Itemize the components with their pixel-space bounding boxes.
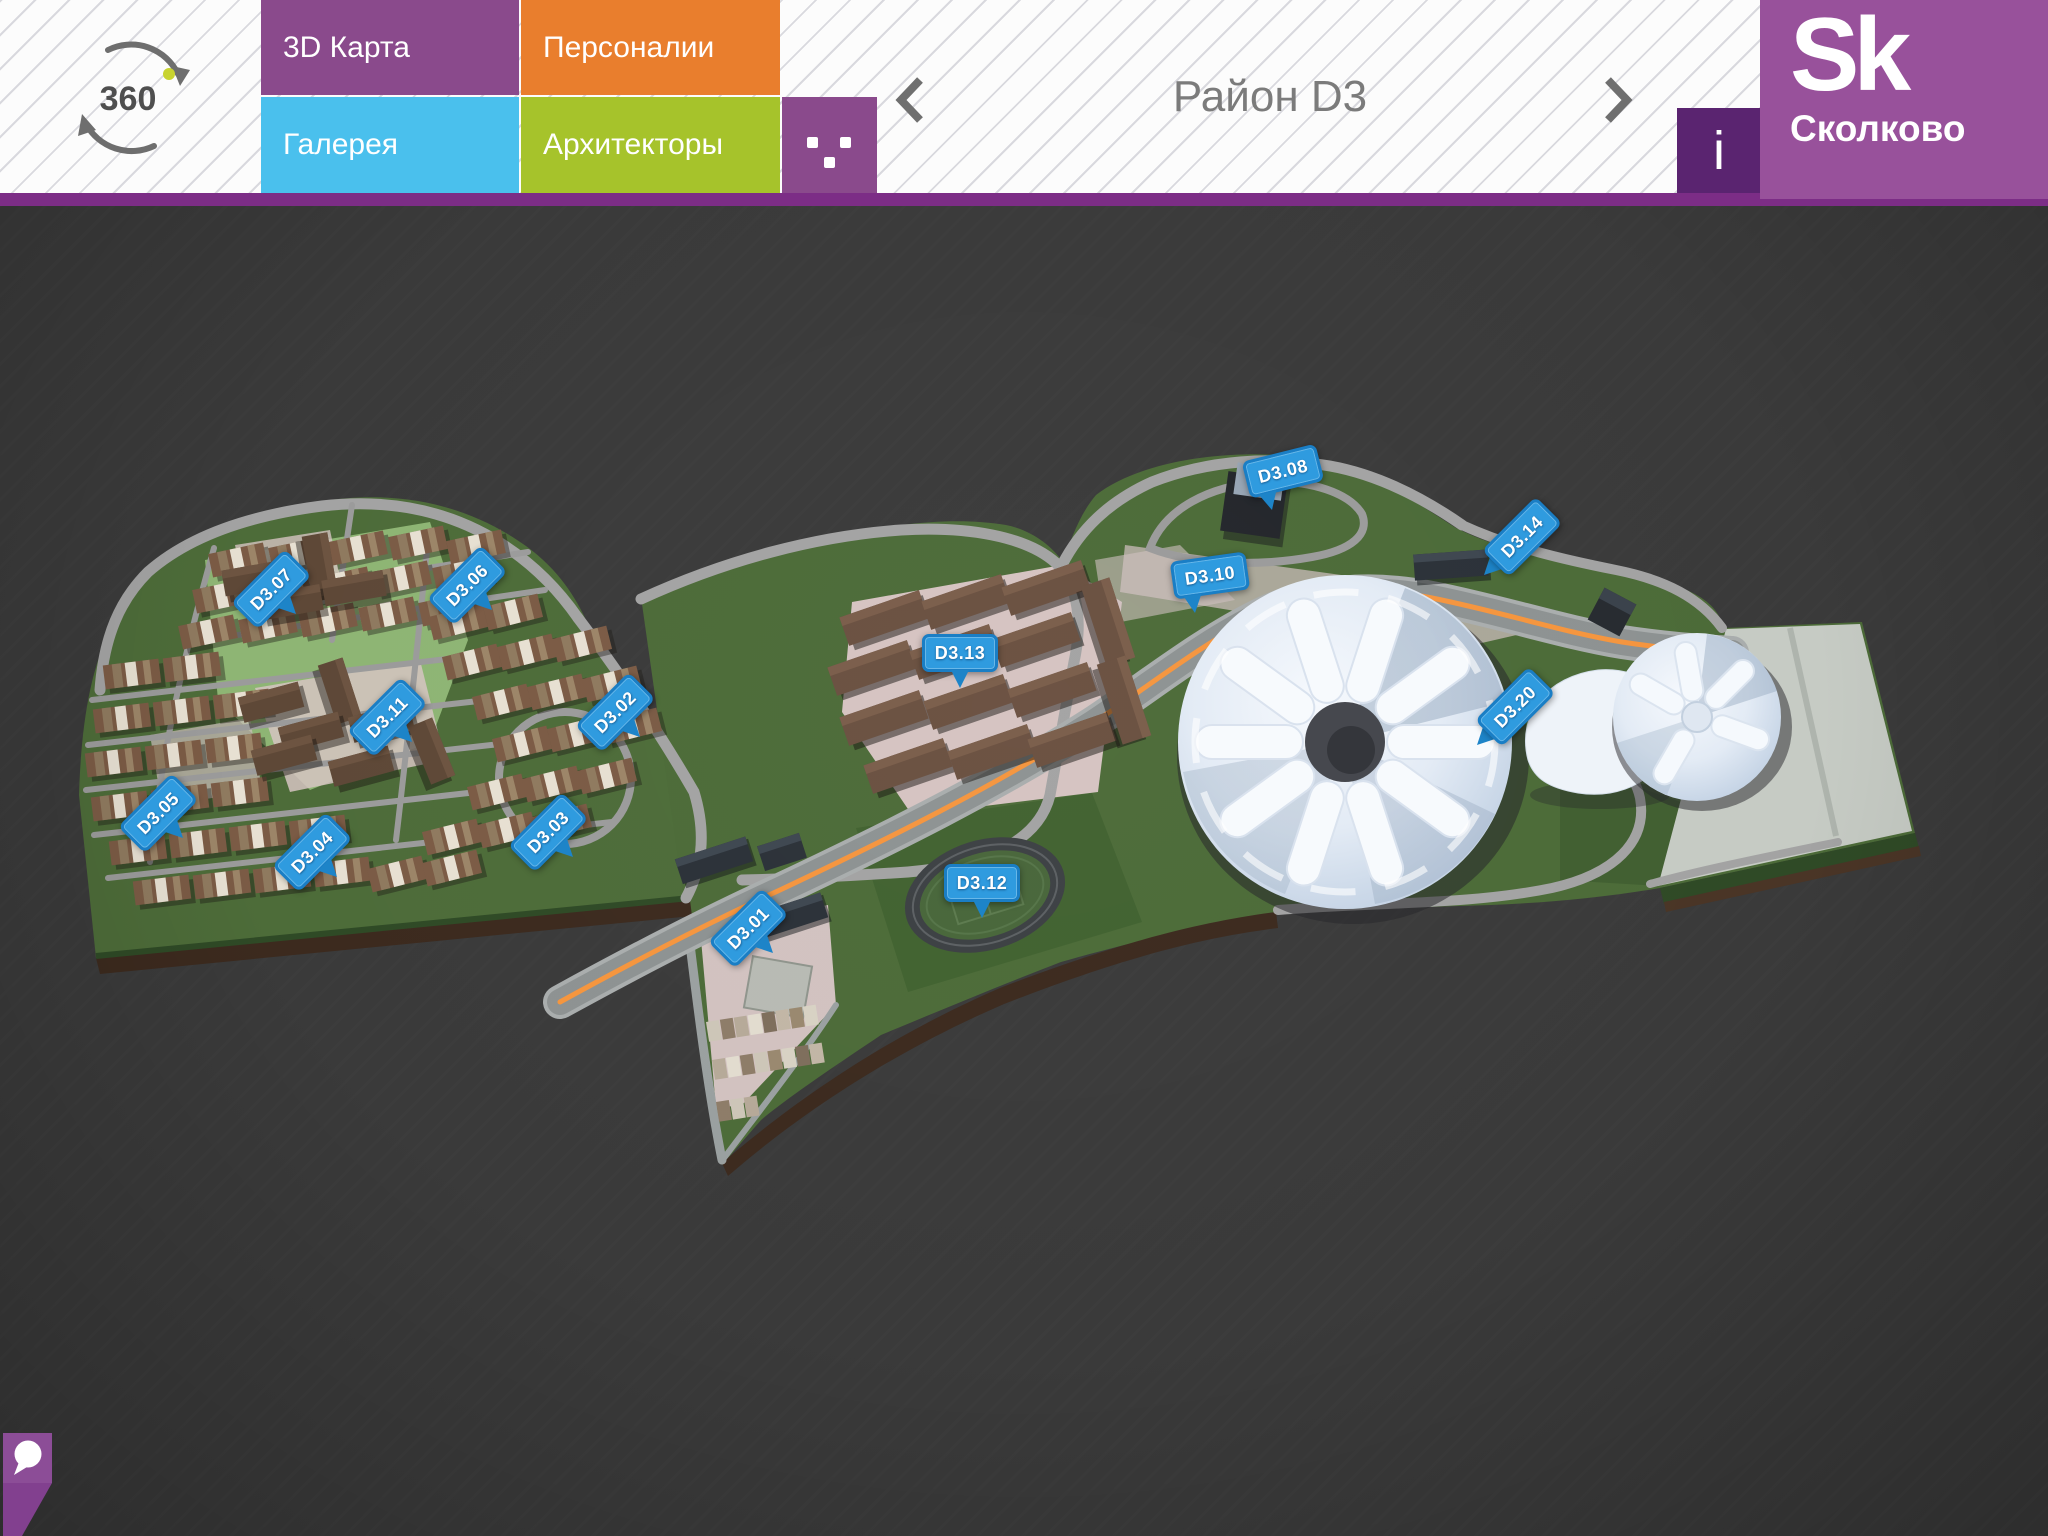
rotate-360-icon: 360 [56, 22, 206, 172]
tab-gallery[interactable]: Галерея [261, 97, 519, 193]
chevron-left-icon [892, 74, 928, 126]
info-button-label: i [1713, 120, 1725, 182]
top-toolbar: 360 3D Карта Галерея Персоналии Архитект… [0, 0, 2048, 206]
dots-menu-button[interactable] [782, 97, 877, 193]
info-button[interactable]: i [1677, 108, 1761, 193]
map-pins: D3.01D3.02D3.03D3.04D3.05D3.06D3.07D3.08… [0, 0, 2048, 1536]
tab-personalities[interactable]: Персоналии [521, 0, 780, 95]
tab-3d-map[interactable]: 3D Карта [261, 0, 519, 95]
chevron-right-icon [1600, 74, 1636, 126]
tab-3d-map-label: 3D Карта [283, 31, 410, 65]
skolkovo-logo-mark: Sk [1790, 0, 1905, 115]
tab-gallery-label: Галерея [283, 128, 398, 162]
tab-personalities-label: Персоналии [543, 31, 714, 65]
skolkovo-logo-name: Сколково [1790, 108, 1965, 150]
tab-architects[interactable]: Архитекторы [521, 97, 780, 193]
app-window: D3.01D3.02D3.03D3.04D3.05D3.06D3.07D3.08… [0, 0, 2048, 1536]
skolkovo-logo: Sk Сколково [1760, 0, 2048, 199]
map-viewport[interactable]: D3.01D3.02D3.03D3.04D3.05D3.06D3.07D3.08… [0, 0, 2048, 1536]
rotate-360-button[interactable]: 360 [0, 0, 261, 193]
toolbar-bottom-strip [0, 193, 2048, 206]
prev-district-button[interactable] [880, 62, 940, 138]
svg-text:360: 360 [99, 80, 156, 118]
district-title: Район D3 [1070, 72, 1470, 122]
chat-button[interactable] [0, 1430, 60, 1536]
next-district-button[interactable] [1588, 62, 1648, 138]
dots-menu-icon [782, 97, 877, 193]
tab-architects-label: Архитекторы [543, 128, 723, 162]
